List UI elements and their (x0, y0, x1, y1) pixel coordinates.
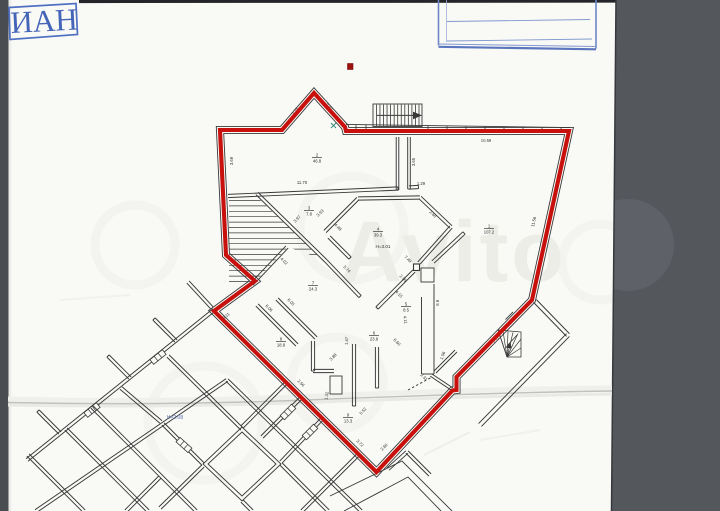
svg-text:8.5: 8.5 (403, 308, 409, 313)
svg-text:39.3: 39.3 (374, 233, 383, 238)
svg-text:3.69: 3.69 (229, 156, 234, 165)
svg-text:6.9: 6.9 (435, 299, 441, 306)
svg-text:46.8: 46.8 (313, 159, 322, 164)
svg-text:24.3: 24.3 (309, 287, 318, 292)
svg-text:1.47: 1.47 (344, 336, 350, 345)
svg-text:Н=2.08: Н=2.08 (167, 415, 183, 421)
svg-text:107.2: 107.2 (484, 230, 495, 235)
svg-text:18.8: 18.8 (277, 343, 286, 348)
svg-text:13.3: 13.3 (344, 419, 353, 424)
svg-text:3.65: 3.65 (411, 157, 416, 166)
svg-text:7.8: 7.8 (306, 212, 312, 217)
svg-text:11.70: 11.70 (297, 180, 308, 185)
svg-text:10.59: 10.59 (481, 138, 492, 143)
svg-text:Н=3.01: Н=3.01 (376, 244, 391, 249)
svg-text:ИАН: ИАН (10, 2, 79, 40)
svg-text:1.29: 1.29 (417, 181, 426, 186)
svg-text:23.9: 23.9 (370, 337, 379, 342)
